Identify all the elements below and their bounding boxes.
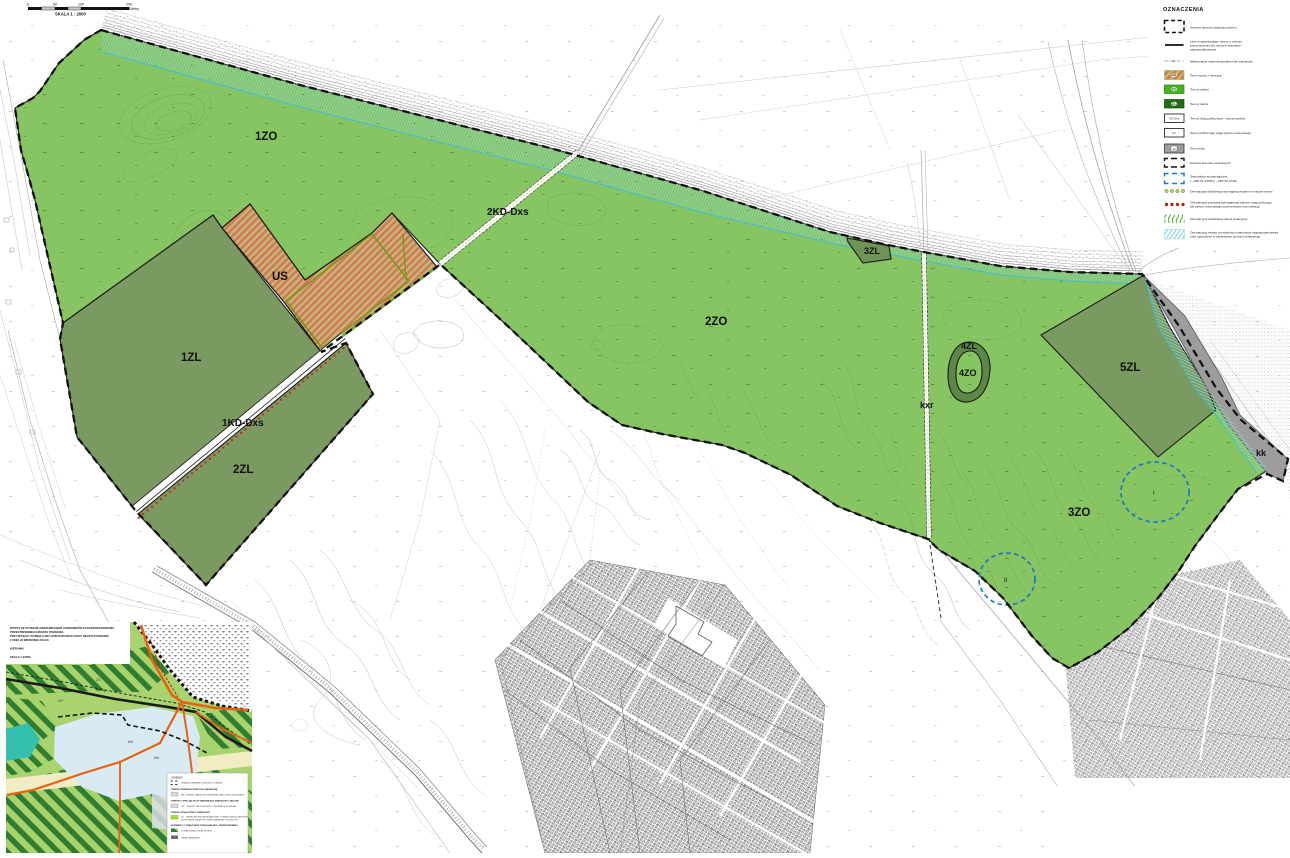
svg-text:Orientacyjna lokalizacja ziele: Orientacyjna lokalizacja zieleni izolacy… <box>1190 217 1248 221</box>
svg-text:1ZL: 1ZL <box>181 352 201 364</box>
svg-text:ELEMENTY O TRAKTURZE TUWILUKAL: ELEMENTY O TRAKTURZE TUWILUKALNEJ I PRZE… <box>171 824 238 827</box>
svg-text:I - AZP 51-27/85 II - AZP 5: I - AZP 51-27/85 II - AZP 51-27/86 <box>1190 179 1237 183</box>
svg-text:kxr: kxr <box>1172 131 1176 135</box>
svg-text:ZO: ZO <box>96 678 101 682</box>
svg-text:5ZL: 5ZL <box>1120 362 1140 374</box>
svg-text:kxr: kxr <box>920 400 934 410</box>
svg-text:O PRAKTURACH KLAT ZIELENI: O PRAKTURACH KLAT ZIELENI <box>181 830 212 833</box>
svg-text:zagospodarowania: zagospodarowania <box>1190 48 1216 52</box>
svg-text:TEREN ZAMKNIĘTY: TEREN ZAMKNIĘTY <box>181 837 201 840</box>
svg-text:Z DNIA 23 WRZEŚNIA 2014 R.: Z DNIA 23 WRZEŚNIA 2014 R. <box>10 637 49 642</box>
svg-text:Teren sportu i rekreacji: Teren sportu i rekreacji <box>1190 74 1222 78</box>
svg-text:ZO - TEREN ZIELENI NIEURZĄDZON: ZO - TEREN ZIELENI NIEURZĄDZONEJ, TERENY… <box>181 816 248 819</box>
svg-text:US: US <box>1172 73 1176 77</box>
svg-text:2ZO: 2ZO <box>705 316 727 328</box>
svg-text:KD-Dxs: KD-Dxs <box>1169 117 1180 121</box>
svg-text:Granica terenów zamkniętych: Granica terenów zamkniętych <box>1190 161 1231 165</box>
svg-text:1KD-Dxs: 1KD-Dxs <box>222 418 264 429</box>
svg-text:2ZL: 2ZL <box>233 464 253 476</box>
svg-text:GRANICA OBSZARU OBJĘTEGO PLANE: GRANICA OBSZARU OBJĘTEGO PLANEM <box>181 782 222 785</box>
svg-text:100: 100 <box>78 3 84 7</box>
svg-text:Teren kolei: Teren kolei <box>1190 147 1205 151</box>
svg-text:Tereny dróg publicznych - pies: Tereny dróg publicznych - pieszo-jezdne <box>1190 117 1245 121</box>
svg-text:MN: MN <box>128 740 134 744</box>
svg-text:oraz ograniczeń w sąsiedztwie: oraz ograniczeń w sąsiedztwie obszaru ko… <box>1190 235 1260 239</box>
svg-text:50: 50 <box>53 3 57 7</box>
svg-text:1ZO: 1ZO <box>255 131 277 143</box>
svg-text:lub pieszo-rowerowego poza ter: lub pieszo-rowerowego poza terenami komu… <box>1190 205 1260 209</box>
svg-text:Tereny zieleni: Tereny zieleni <box>1190 88 1209 92</box>
svg-text:Granica obszaru objętego plane: Granica obszaru objętego planem <box>1190 26 1237 30</box>
svg-text:II: II <box>1004 578 1008 584</box>
svg-text:TERENY WYŁĄCZONE Z ZABUDOWY: TERENY WYŁĄCZONE Z ZABUDOWY <box>171 811 211 814</box>
svg-text:Orientacyjna lokalizacja wymag: Orientacyjna lokalizacja wymaganych plan… <box>1190 189 1273 193</box>
svg-text:ZZYW RELAC SIEJA PTK, TEREN ZA: ZZYW RELAC SIEJA PTK, TEREN ZAMKNIĘTY KO… <box>181 818 239 821</box>
svg-text:ZO: ZO <box>1172 87 1177 91</box>
svg-text:2KD-Dxs: 2KD-Dxs <box>487 207 529 218</box>
svg-text:Metry: Metry <box>131 7 140 11</box>
svg-text:4ZL: 4ZL <box>961 341 978 351</box>
svg-text:TERENY PRZEZNACZONE POD ZABUDO: TERENY PRZEZNACZONE POD ZABUDOWĘ <box>171 788 218 791</box>
svg-text:3ZL: 3ZL <box>864 246 881 256</box>
svg-text:Tereny lasów: Tereny lasów <box>1190 102 1209 106</box>
svg-text:SKALA 1 : 2000: SKALA 1 : 2000 <box>55 12 86 17</box>
svg-text:US* - TERENY USŁUG SPORTU I RE: US* - TERENY USŁUG SPORTU I REKREACJI W … <box>181 805 237 808</box>
svg-text:KIERUNKI: KIERUNKI <box>10 647 24 651</box>
svg-text:TERENY O SPECJALNYCH WARUNKACH: TERENY O SPECJALNYCH WARUNKACH ZABUDOWY … <box>171 800 239 803</box>
svg-text:0: 0 <box>27 3 29 7</box>
svg-text:MN: MN <box>154 756 160 760</box>
svg-text:ZL: ZL <box>1172 102 1176 106</box>
svg-text:3ZO: 3ZO <box>1068 507 1090 519</box>
svg-text:OZNACZENIA: OZNACZENIA <box>1163 7 1204 13</box>
svg-text:kk: kk <box>1256 448 1267 458</box>
svg-text:MN - TERENY ZABUDOWY MIESZKANI: MN - TERENY ZABUDOWY MIESZKANIOWEJ JEDNO… <box>181 794 244 797</box>
svg-text:LEGENDA: LEGENDA <box>171 777 183 780</box>
svg-text:US: US <box>272 271 288 283</box>
svg-text:4ZO: 4ZO <box>959 368 977 378</box>
svg-text:US*: US* <box>58 699 64 703</box>
svg-text:Maksymalne nieprzekraczalne li: Maksymalne nieprzekraczalne linie zabudo… <box>1190 59 1253 63</box>
svg-text:SKALA 1:10000: SKALA 1:10000 <box>10 655 31 659</box>
svg-text:Teren publicznego ciągu pieszo: Teren publicznego ciągu pieszo-roweroweg… <box>1190 131 1251 135</box>
